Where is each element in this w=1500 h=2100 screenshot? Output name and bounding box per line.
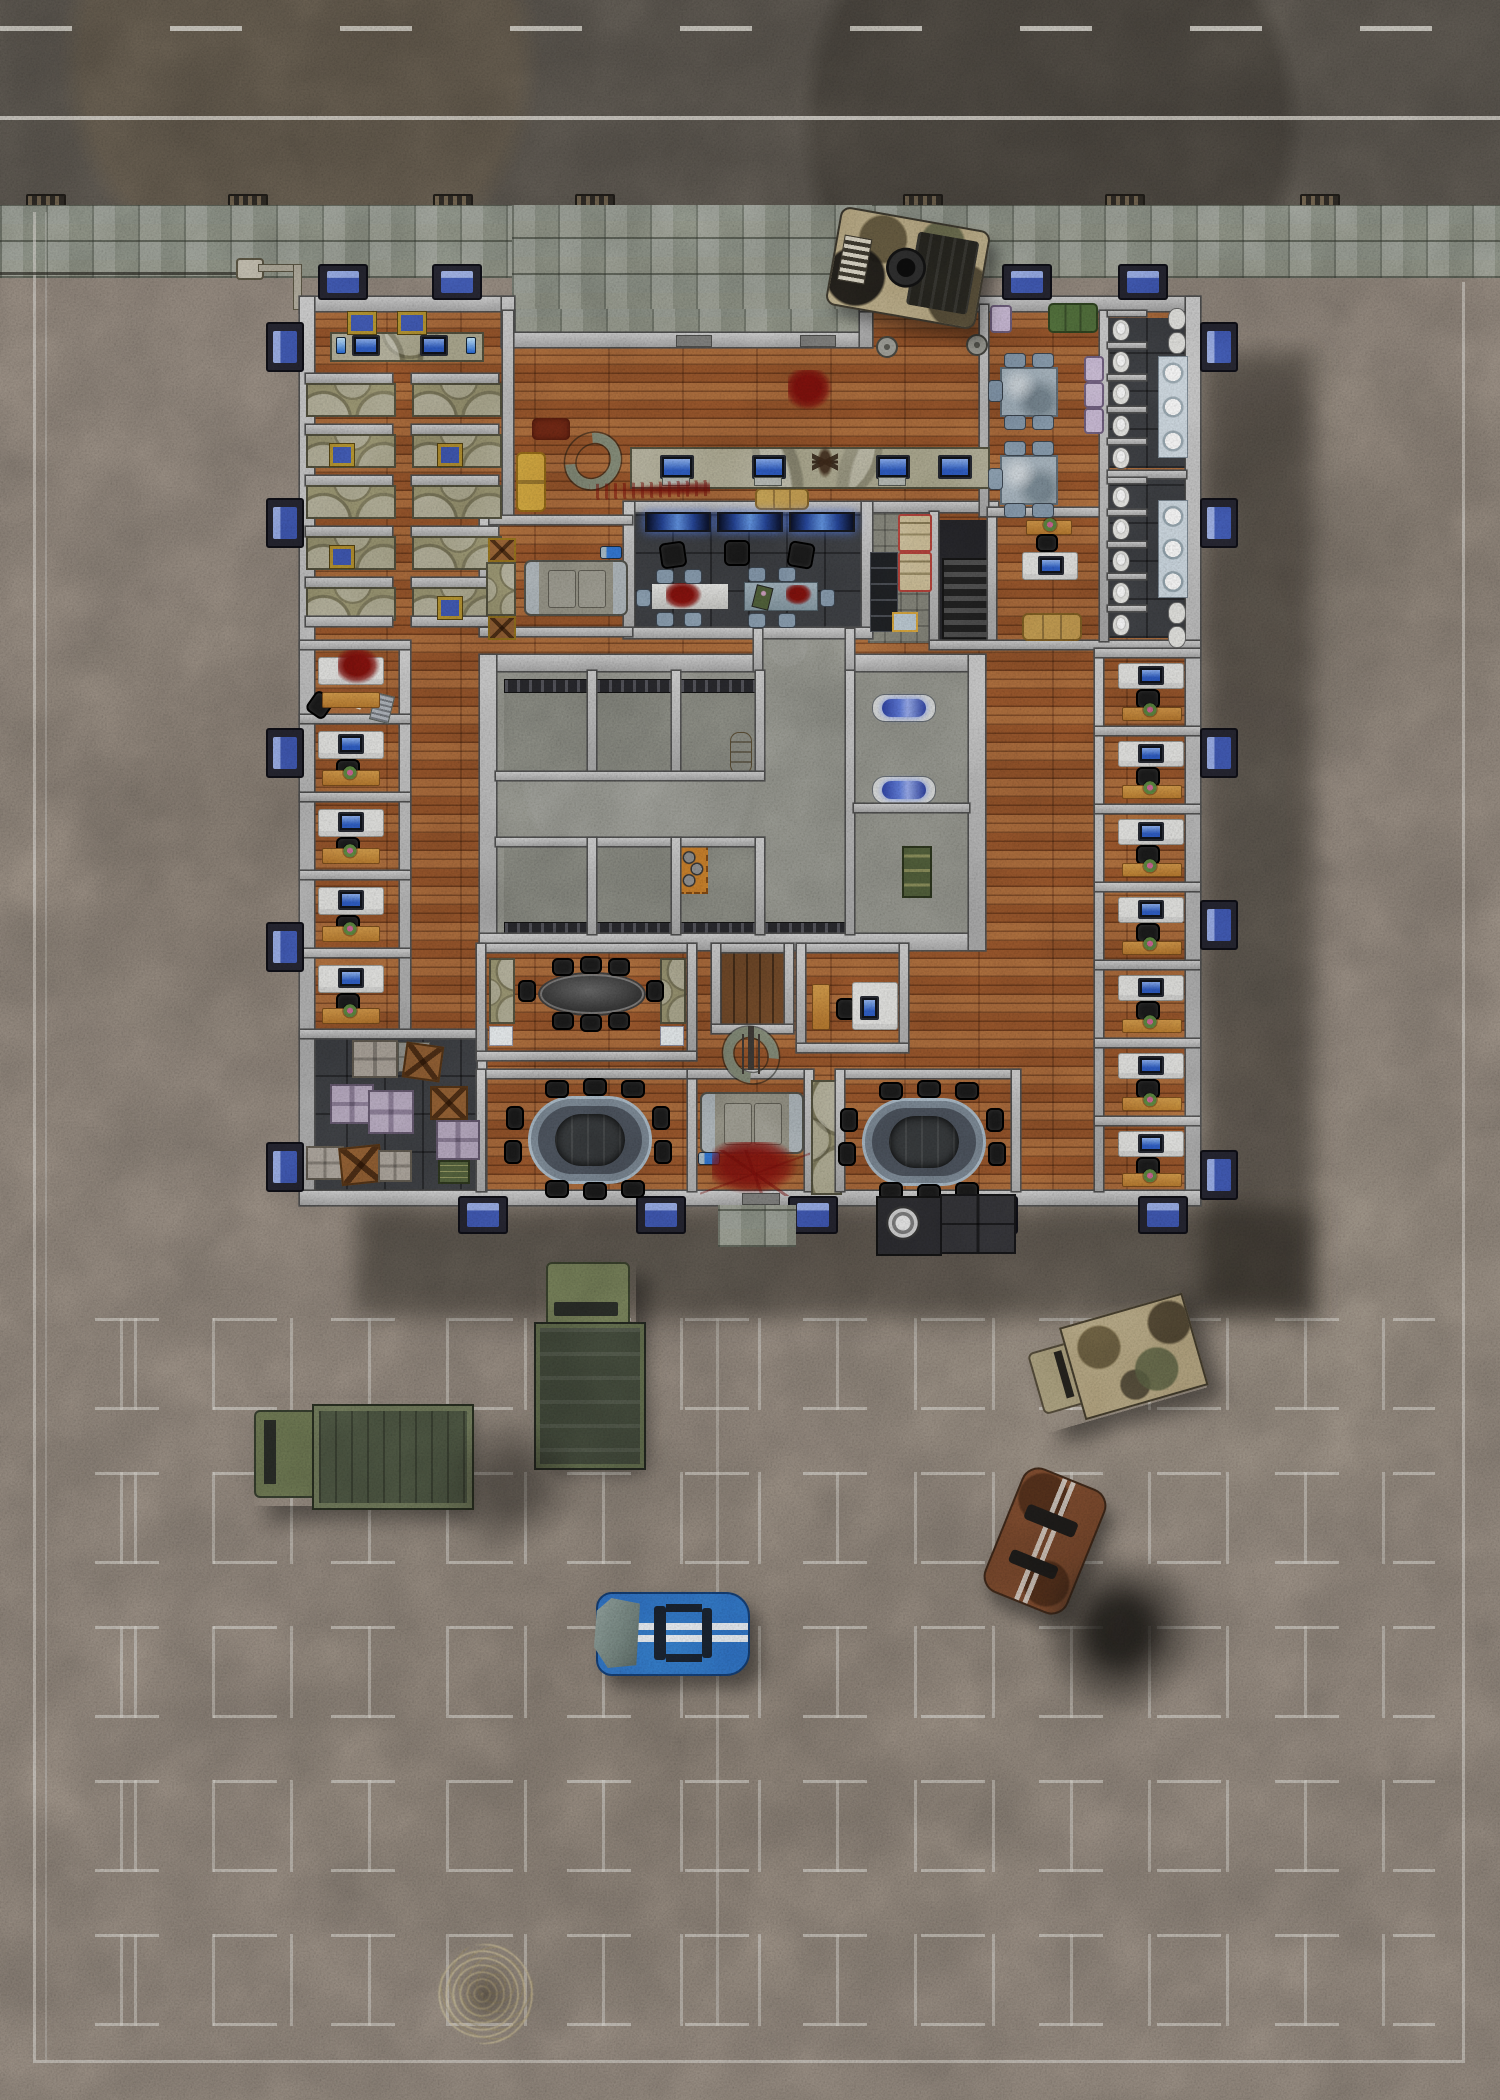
floor-valve[interactable]: [876, 336, 898, 358]
floor-valve[interactable]: [966, 334, 988, 356]
wall: [756, 838, 764, 934]
cubicle-wall: [412, 425, 498, 434]
chair[interactable]: [778, 613, 796, 628]
locker[interactable]: [870, 584, 898, 600]
window[interactable]: [266, 1142, 304, 1192]
chair[interactable]: [840, 1108, 858, 1132]
plant: [342, 766, 358, 782]
wall: [712, 944, 720, 1033]
monitor[interactable]: [338, 968, 364, 988]
urinal[interactable]: [1168, 602, 1186, 624]
window[interactable]: [1200, 498, 1238, 548]
monitor[interactable]: [338, 890, 364, 910]
monitor[interactable]: [1138, 822, 1164, 841]
dead-creature[interactable]: [812, 436, 838, 488]
chair[interactable]: [1004, 415, 1026, 430]
toilet[interactable]: [1112, 319, 1130, 341]
lavender-chair[interactable]: [1084, 356, 1104, 382]
toilet[interactable]: [1112, 582, 1130, 604]
locker[interactable]: [870, 552, 898, 568]
window[interactable]: [1002, 264, 1052, 300]
area-rug: [532, 418, 570, 440]
toilet[interactable]: [1112, 383, 1130, 405]
cubicle-wall: [306, 425, 392, 434]
wall: [969, 655, 985, 950]
vehicle-panel: [578, 570, 606, 608]
monitor[interactable]: [876, 455, 910, 479]
chair[interactable]: [955, 1082, 979, 1100]
monitor[interactable]: [420, 335, 448, 356]
locker[interactable]: [870, 568, 898, 584]
cubicle-wall: [412, 527, 498, 536]
sink-counter[interactable]: [1158, 356, 1188, 458]
chair[interactable]: [748, 567, 766, 582]
wall: [1095, 961, 1200, 969]
wall: [477, 1052, 696, 1060]
lot-perimeter-left-inner: [45, 212, 47, 2060]
stall-wall: [1108, 574, 1146, 579]
boardroom-table[interactable]: [862, 1098, 986, 1186]
army-chest[interactable]: [438, 1160, 470, 1184]
bench[interactable]: [755, 488, 809, 510]
wall: [930, 641, 1200, 649]
stall-wall: [1108, 510, 1146, 515]
wall: [756, 671, 764, 772]
toilet[interactable]: [1112, 415, 1130, 437]
office-chair[interactable]: [786, 540, 816, 570]
stall-wall: [1108, 439, 1146, 444]
parking-row: [95, 1626, 1435, 1718]
plant: [1042, 518, 1058, 534]
wall: [846, 671, 854, 934]
chair[interactable]: [988, 380, 1003, 402]
window[interactable]: [1200, 728, 1238, 778]
plant: [1142, 937, 1158, 953]
supply-crate[interactable]: [488, 538, 516, 562]
chair[interactable]: [652, 1106, 670, 1130]
plant: [1142, 859, 1158, 875]
urinal[interactable]: [1168, 626, 1186, 648]
wall: [624, 628, 872, 638]
car-windshield: [654, 1606, 666, 1660]
stone-table[interactable]: [1000, 455, 1058, 505]
toilet[interactable]: [1112, 614, 1130, 636]
urinal[interactable]: [1168, 332, 1186, 354]
chair[interactable]: [838, 1142, 856, 1166]
wall: [1095, 1039, 1200, 1047]
wall: [480, 516, 632, 524]
chair[interactable]: [820, 589, 835, 607]
wall: [480, 655, 754, 671]
truck-cab: [254, 1410, 316, 1498]
wall: [400, 641, 410, 1038]
car-windshield: [1023, 1503, 1079, 1538]
car-side-windows: [666, 1604, 702, 1612]
wall: [1095, 727, 1200, 735]
stall-wall: [1108, 606, 1146, 611]
dead-bush[interactable]: [438, 1944, 534, 2044]
cot[interactable]: [412, 485, 502, 519]
chair[interactable]: [1032, 441, 1054, 456]
wall-monitor: [330, 546, 354, 568]
lot-perimeter-left: [33, 212, 36, 2060]
wall: [300, 1030, 486, 1038]
tan-couch[interactable]: [1022, 613, 1082, 641]
lot-perimeter-right: [1462, 282, 1465, 2060]
cubicle-wall: [306, 374, 392, 383]
lot-perimeter-bottom: [33, 2060, 1465, 2063]
road-dashed-line: [0, 26, 1500, 31]
wall: [1095, 1117, 1200, 1125]
wall: [480, 655, 496, 950]
wall: [836, 1070, 1020, 1078]
stall-wall: [1108, 375, 1146, 380]
monitor[interactable]: [660, 455, 694, 479]
wall: [588, 671, 596, 772]
metal-crate[interactable]: [378, 1150, 412, 1182]
cot[interactable]: [306, 383, 396, 417]
blue-bottle[interactable]: [466, 337, 476, 354]
monitor[interactable]: [1138, 978, 1164, 997]
blue-bottle[interactable]: [336, 337, 346, 354]
cot[interactable]: [486, 562, 516, 616]
urinal[interactable]: [1168, 308, 1186, 330]
monitor[interactable]: [938, 455, 972, 479]
boardroom-table[interactable]: [528, 1096, 652, 1184]
wooden-crate[interactable]: [338, 1144, 384, 1186]
rear-path: [718, 1205, 796, 1247]
blood-pool: [338, 650, 380, 684]
plant: [1142, 781, 1158, 797]
truck-cab: [546, 1262, 630, 1328]
chair[interactable]: [621, 1080, 645, 1098]
plant: [1142, 1169, 1158, 1185]
conference-table[interactable]: [540, 974, 644, 1014]
chair[interactable]: [656, 612, 674, 627]
lavender-crate[interactable]: [368, 1090, 414, 1134]
truck-windshield: [554, 1302, 618, 1316]
cell-vent-grate: [680, 679, 758, 693]
monitor[interactable]: [1138, 666, 1164, 685]
wall: [1012, 1070, 1020, 1191]
window[interactable]: [1138, 1196, 1188, 1234]
wall: [1095, 805, 1200, 813]
wall: [300, 871, 410, 879]
wall-screen: [398, 312, 426, 334]
credenza[interactable]: [322, 692, 380, 708]
wall: [477, 944, 485, 1060]
chair[interactable]: [917, 1080, 941, 1098]
machine-panel: [754, 1103, 782, 1145]
monitor[interactable]: [338, 812, 364, 832]
supply-box[interactable]: [892, 612, 918, 632]
wall: [1186, 297, 1200, 1205]
lavender-chair[interactable]: [1084, 408, 1104, 434]
wall: [496, 772, 764, 780]
tall-cabinet[interactable]: [898, 552, 932, 592]
toilet[interactable]: [1112, 351, 1130, 373]
yellow-couch[interactable]: [516, 452, 546, 512]
wall: [862, 502, 998, 512]
blood-streaks: [700, 1150, 810, 1196]
cot[interactable]: [306, 485, 396, 519]
wall: [300, 949, 410, 957]
chair[interactable]: [988, 1142, 1006, 1166]
plant: [342, 1004, 358, 1020]
wall: [1095, 883, 1200, 891]
monitor[interactable]: [352, 335, 380, 356]
wall: [846, 655, 985, 671]
tool-mat[interactable]: [678, 844, 708, 894]
chair[interactable]: [583, 1078, 607, 1096]
chair[interactable]: [621, 1180, 645, 1198]
armored-vehicle[interactable]: [524, 560, 628, 616]
plant: [1142, 703, 1158, 719]
chair[interactable]: [1004, 353, 1026, 368]
machine-panel: [724, 1103, 752, 1145]
truck-windshield: [264, 1420, 276, 1484]
tire-smoke: [430, 1420, 590, 1550]
plant: [342, 922, 358, 938]
stall-wall: [1108, 343, 1146, 348]
chair[interactable]: [684, 612, 702, 627]
plant: [1142, 1015, 1158, 1031]
toilet[interactable]: [1112, 486, 1130, 508]
cell: [596, 846, 672, 934]
window[interactable]: [1200, 322, 1238, 372]
wall-screen: [348, 312, 376, 334]
credenza[interactable]: [812, 984, 830, 1030]
wall: [797, 944, 805, 1052]
cot[interactable]: [306, 587, 396, 621]
remains: [786, 585, 812, 605]
cot[interactable]: [412, 383, 502, 417]
wall: [854, 804, 969, 812]
monitor[interactable]: [1138, 900, 1164, 919]
glowing-wall-display[interactable]: [717, 512, 783, 532]
chair[interactable]: [1032, 415, 1054, 430]
cell-vent-grate: [504, 679, 590, 693]
wall-monitor: [438, 444, 462, 466]
generator-drum: [886, 1206, 920, 1240]
wall: [785, 944, 793, 1033]
privacy-screen[interactable]: [489, 958, 515, 1024]
supply-barrel[interactable]: [730, 732, 752, 774]
window[interactable]: [318, 264, 368, 300]
wall: [588, 838, 596, 934]
chair[interactable]: [504, 1140, 522, 1164]
blood-pool: [666, 583, 702, 609]
console[interactable]: [660, 1026, 684, 1046]
cubicle-wall: [306, 617, 392, 626]
parking-row: [95, 1318, 1435, 1410]
wooden-crate[interactable]: [430, 1086, 468, 1120]
wall: [496, 838, 764, 846]
chair[interactable]: [1032, 353, 1054, 368]
window[interactable]: [266, 498, 304, 548]
toilet[interactable]: [1112, 518, 1130, 540]
chair[interactable]: [748, 613, 766, 628]
crate-stack[interactable]: [940, 1194, 1016, 1254]
wall: [624, 502, 872, 512]
wall: [712, 944, 793, 952]
chair[interactable]: [608, 958, 630, 976]
glowing-wall-display[interactable]: [645, 512, 711, 532]
front-door[interactable]: [800, 335, 836, 347]
humvee-grille: [837, 235, 873, 285]
wall-monitor: [330, 444, 354, 466]
office-chair[interactable]: [724, 540, 750, 566]
wall: [300, 641, 410, 649]
monitor[interactable]: [338, 734, 364, 754]
car-side-windows: [666, 1654, 702, 1662]
chair[interactable]: [552, 1012, 574, 1030]
metal-crate[interactable]: [352, 1040, 398, 1078]
window[interactable]: [266, 322, 304, 372]
wall: [300, 793, 410, 801]
blood-splatter: [788, 370, 832, 410]
cubicle-wall: [306, 476, 392, 485]
stall-wall: [1108, 311, 1146, 316]
monitor[interactable]: [1138, 1056, 1164, 1075]
wall: [477, 944, 696, 952]
wall: [688, 944, 696, 1060]
wooden-crate[interactable]: [402, 1042, 445, 1083]
wall: [754, 629, 762, 671]
cell: [504, 846, 588, 934]
keyboard[interactable]: [878, 477, 906, 486]
wall: [688, 1070, 696, 1191]
lavender-crate[interactable]: [436, 1120, 480, 1160]
wall: [797, 1044, 908, 1052]
wall: [672, 838, 680, 934]
wall-monitor: [438, 597, 462, 619]
sink-counter[interactable]: [1158, 500, 1188, 598]
monitor[interactable]: [860, 996, 879, 1020]
generator[interactable]: [876, 1196, 942, 1256]
monitor[interactable]: [1138, 1134, 1164, 1153]
chair[interactable]: [580, 1014, 602, 1032]
road-solid-line: [0, 116, 1500, 120]
stall-wall: [1108, 478, 1146, 483]
tall-cabinet[interactable]: [898, 514, 932, 552]
cubicle-wall: [412, 374, 498, 383]
chair[interactable]: [545, 1080, 569, 1098]
wall: [900, 944, 908, 1052]
chair[interactable]: [552, 958, 574, 976]
scorch-smoke: [1035, 1545, 1205, 1715]
wall: [1108, 471, 1186, 478]
parking-row: [95, 1780, 1435, 1872]
window[interactable]: [266, 728, 304, 778]
glowing-wall-display[interactable]: [789, 512, 855, 532]
window[interactable]: [1200, 900, 1238, 950]
chair[interactable]: [778, 567, 796, 582]
chair[interactable]: [654, 1140, 672, 1164]
chair[interactable]: [580, 956, 602, 974]
power-line: [0, 272, 240, 275]
parking-row: [95, 1934, 1435, 2026]
crushed-front: [594, 1598, 640, 1668]
chair[interactable]: [545, 1180, 569, 1198]
freight-elevator-platform[interactable]: [720, 952, 785, 1025]
stall-wall: [1108, 542, 1146, 547]
chair[interactable]: [608, 1012, 630, 1030]
front-door[interactable]: [676, 335, 712, 347]
chair[interactable]: [636, 589, 651, 607]
plant: [1142, 1093, 1158, 1109]
wall: [1095, 649, 1200, 657]
cubicle-wall: [412, 476, 498, 485]
chair[interactable]: [1032, 503, 1054, 518]
wall: [672, 671, 680, 772]
cell-vent-grate: [596, 679, 674, 693]
chair[interactable]: [646, 980, 664, 1002]
stall-wall: [1108, 407, 1146, 412]
chair[interactable]: [1004, 441, 1026, 456]
lavender-chair[interactable]: [990, 305, 1012, 333]
window[interactable]: [266, 922, 304, 972]
wall: [503, 311, 513, 516]
cubicle-wall: [306, 527, 392, 536]
monitor[interactable]: [752, 455, 786, 479]
flashlight[interactable]: [600, 546, 622, 559]
window[interactable]: [1200, 1150, 1238, 1200]
plant: [342, 844, 358, 860]
cubicle-wall: [306, 578, 392, 587]
entrance-recess: [514, 309, 860, 335]
car-rear-window: [702, 1608, 712, 1658]
monitor[interactable]: [1038, 556, 1064, 575]
lavender-chair[interactable]: [1084, 382, 1104, 408]
chair[interactable]: [518, 980, 536, 1002]
chair[interactable]: [684, 569, 702, 584]
window[interactable]: [636, 1196, 686, 1234]
toilet[interactable]: [1112, 447, 1130, 469]
window[interactable]: [1118, 264, 1168, 300]
chair[interactable]: [988, 468, 1003, 490]
keyboard[interactable]: [754, 477, 782, 486]
supply-crate[interactable]: [488, 616, 516, 640]
green-couch[interactable]: [1048, 303, 1098, 333]
office-chair[interactable]: [658, 540, 687, 569]
stasis-pod[interactable]: [872, 776, 936, 804]
chair[interactable]: [583, 1182, 607, 1200]
chair[interactable]: [506, 1106, 524, 1130]
stasis-pod[interactable]: [872, 694, 936, 722]
chair[interactable]: [1004, 503, 1026, 518]
monitor[interactable]: [1138, 744, 1164, 763]
wall: [477, 1070, 696, 1078]
coat-rack[interactable]: [748, 1026, 754, 1070]
battle-map: [0, 0, 1500, 2100]
toilet[interactable]: [1112, 550, 1130, 572]
window[interactable]: [458, 1196, 508, 1234]
wall: [797, 944, 908, 952]
chair[interactable]: [656, 569, 674, 584]
office-chair[interactable]: [1036, 534, 1058, 552]
wrecked-blue-sports-car[interactable]: [596, 1592, 750, 1676]
stone-table[interactable]: [1000, 367, 1058, 417]
chair[interactable]: [986, 1108, 1004, 1132]
window[interactable]: [432, 264, 482, 300]
console[interactable]: [489, 1026, 513, 1046]
wall: [846, 629, 854, 671]
army-crate[interactable]: [902, 846, 932, 898]
chair[interactable]: [879, 1082, 903, 1100]
wall: [988, 508, 996, 645]
rear-door[interactable]: [742, 1193, 780, 1205]
